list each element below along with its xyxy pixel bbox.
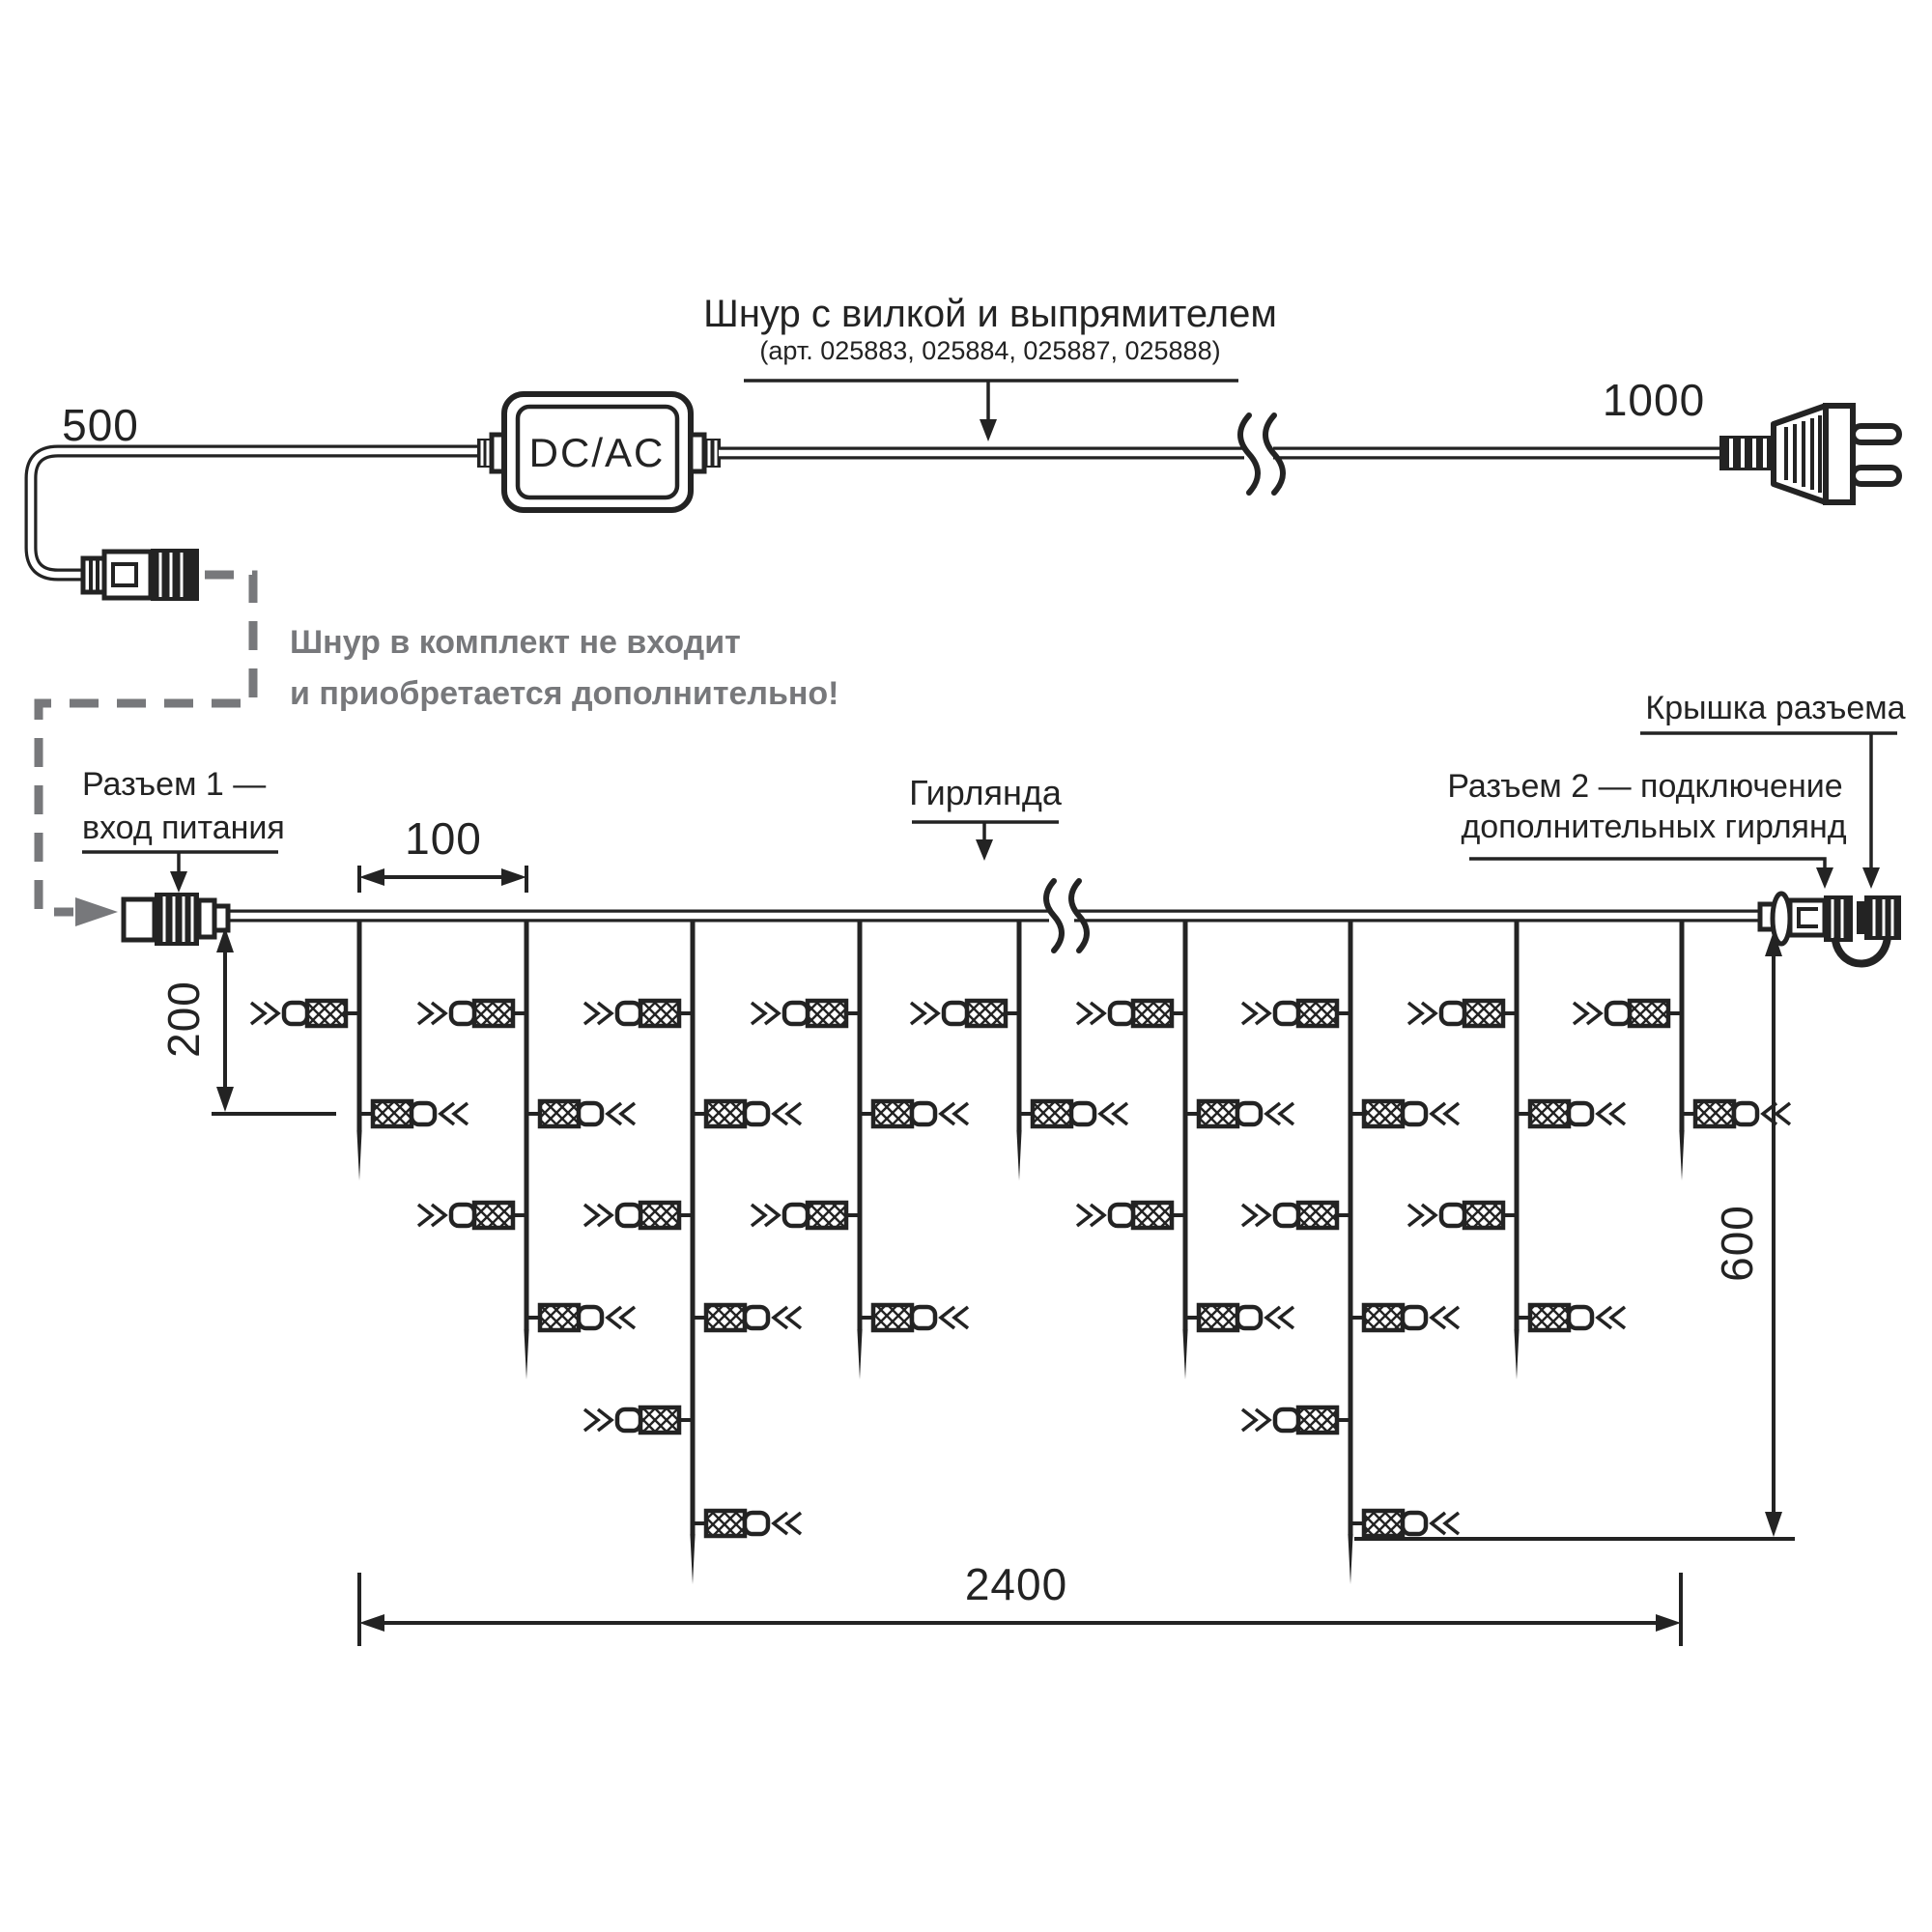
dim-100-label: 100 <box>405 813 482 864</box>
led-bulb <box>1185 1305 1293 1330</box>
cord-title: Шнур с вилкой и выпрямителем <box>703 293 1277 335</box>
light-rays-icon <box>584 1003 598 1024</box>
bulb-socket <box>640 1203 679 1228</box>
bulb-lens <box>451 1205 474 1226</box>
led-bulb <box>1242 1001 1350 1026</box>
bulb-socket <box>1530 1305 1569 1330</box>
bulb-lens <box>1441 1205 1464 1226</box>
bulb-socket <box>1199 1305 1237 1330</box>
drop-tip <box>356 1130 361 1180</box>
led-bulb <box>911 1001 1019 1026</box>
icicle-drop <box>1574 922 1790 1180</box>
bulb-socket <box>540 1305 579 1330</box>
bulb-lens <box>617 1409 640 1431</box>
wire-break-icon <box>1046 881 1087 951</box>
light-rays-icon <box>1445 1103 1459 1124</box>
note-line1: Шнур в комплект не входит <box>290 624 741 661</box>
bulb-lens <box>617 1205 640 1226</box>
bulb-lens <box>912 1103 935 1124</box>
drop-tip <box>1514 1329 1519 1379</box>
led-bulb <box>860 1101 968 1126</box>
light-rays-icon <box>1776 1103 1790 1124</box>
dashed-arrow-icon <box>75 897 118 926</box>
connector-cap <box>1857 895 1901 940</box>
connector2-pointer <box>1469 859 1833 889</box>
light-rays-icon <box>787 1513 801 1534</box>
bulb-socket <box>1298 1407 1337 1433</box>
bulb-socket <box>1298 1001 1337 1026</box>
led-bulb <box>1350 1511 1459 1536</box>
led-bulb <box>251 1001 359 1026</box>
icicle-drop <box>1077 922 1293 1379</box>
bulb-lens <box>1275 1003 1298 1024</box>
led-bulb <box>584 1407 693 1433</box>
power-plug <box>1719 406 1899 502</box>
drop-tip <box>524 1329 528 1379</box>
cable-1000-label: 1000 <box>1603 375 1705 425</box>
bulb-socket <box>706 1101 745 1126</box>
bulb-socket <box>808 1203 846 1228</box>
bulb-lens <box>617 1003 640 1024</box>
cap-label: Крышка разъема <box>1645 690 1905 726</box>
connector-2 <box>1760 894 1901 964</box>
cord-title-arrow-icon <box>980 381 997 441</box>
bulb-lens <box>912 1307 935 1328</box>
bulb-socket <box>307 1001 346 1026</box>
bulb-lens <box>1275 1409 1298 1431</box>
connector2-label-line1: Разъем 2 — подключение <box>1447 768 1842 805</box>
bulb-lens <box>579 1307 602 1328</box>
bulb-lens <box>1606 1003 1630 1024</box>
light-rays-icon <box>954 1103 968 1124</box>
bulb-socket <box>373 1101 412 1126</box>
light-rays-icon <box>787 1307 801 1328</box>
light-rays-icon <box>621 1307 635 1328</box>
drop-tip <box>690 1534 695 1584</box>
bulb-lens <box>1403 1513 1426 1534</box>
light-rays-icon <box>621 1103 635 1124</box>
light-rays-icon <box>418 1003 432 1024</box>
bulb-socket <box>1530 1101 1569 1126</box>
light-rays-icon <box>1242 1205 1256 1226</box>
led-bulb <box>1185 1101 1293 1126</box>
bulb-lens <box>784 1205 808 1226</box>
connector-1 <box>124 893 228 946</box>
bulb-socket <box>1298 1203 1337 1228</box>
bulb-lens <box>1071 1103 1094 1124</box>
drop-tip <box>1182 1329 1187 1379</box>
led-bulb <box>418 1001 526 1026</box>
bulb-lens <box>1110 1003 1133 1024</box>
led-bulb <box>693 1101 801 1126</box>
light-rays-icon <box>1445 1513 1459 1534</box>
light-rays-icon <box>1280 1307 1293 1328</box>
light-rays-icon <box>454 1103 468 1124</box>
bulb-socket <box>540 1101 579 1126</box>
led-bulb <box>1408 1001 1517 1026</box>
bulb-lens <box>944 1003 967 1024</box>
bulb-socket <box>873 1101 912 1126</box>
bulb-lens <box>784 1003 808 1024</box>
bulb-socket <box>1464 1203 1503 1228</box>
connector1-label-line2: вход питания <box>82 810 285 846</box>
bulb-socket <box>474 1203 513 1228</box>
dcac-adapter: DC/AC <box>477 394 721 510</box>
drops-layer <box>251 922 1790 1584</box>
bulb-lens <box>1275 1205 1298 1226</box>
connector1-label-line1: Разъем 1 — <box>82 766 266 803</box>
led-bulb <box>1077 1203 1185 1228</box>
light-rays-icon <box>1242 1003 1256 1024</box>
bulb-socket <box>640 1407 679 1433</box>
light-rays-icon <box>911 1003 924 1024</box>
cable-1000 <box>719 415 1721 493</box>
light-rays-icon <box>584 1205 598 1226</box>
connector2-label-line2: дополнительных гирлянд <box>1461 809 1846 845</box>
bulb-socket <box>640 1001 679 1026</box>
cable-500-label: 500 <box>62 400 139 450</box>
bulb-lens <box>284 1003 307 1024</box>
drop-tip <box>1016 1130 1021 1180</box>
bulb-socket <box>1033 1101 1071 1126</box>
light-rays-icon <box>1114 1103 1127 1124</box>
garland-wire <box>226 881 1762 951</box>
bulb-lens <box>1237 1307 1261 1328</box>
bulb-lens <box>412 1103 435 1124</box>
light-rays-icon <box>752 1205 765 1226</box>
led-bulb <box>418 1203 526 1228</box>
bulb-socket <box>1133 1203 1172 1228</box>
light-rays-icon <box>787 1103 801 1124</box>
led-bulb <box>1517 1101 1625 1126</box>
led-bulb <box>1350 1305 1459 1330</box>
bulb-lens <box>1237 1103 1261 1124</box>
bulb-lens <box>745 1513 768 1534</box>
led-bulb <box>359 1101 468 1126</box>
bulb-socket <box>1199 1101 1237 1126</box>
light-rays-icon <box>1445 1307 1459 1328</box>
led-bulb <box>584 1001 693 1026</box>
drop-tip <box>1679 1130 1684 1180</box>
led-bulb <box>693 1511 801 1536</box>
bulb-lens <box>1441 1003 1464 1024</box>
cord-subtitle: (арт. 025883, 025884, 025887, 025888) <box>759 336 1220 365</box>
led-bulb <box>1019 1101 1127 1126</box>
bulb-lens <box>1110 1205 1133 1226</box>
bulb-socket <box>873 1305 912 1330</box>
note-line2: и приобретается дополнительно! <box>290 675 839 712</box>
led-bulb <box>752 1001 860 1026</box>
led-bulb <box>1242 1203 1350 1228</box>
bulb-lens <box>1403 1103 1426 1124</box>
led-bulb <box>1574 1001 1682 1026</box>
cable-break-icon <box>1240 415 1283 493</box>
bulb-socket <box>1464 1001 1503 1026</box>
dcac-label: DC/AC <box>529 430 666 475</box>
garland-section: Разъем 1 — вход питания Гирлянда Разъем … <box>82 690 1906 1646</box>
light-rays-icon <box>1574 1003 1587 1024</box>
bulb-socket <box>1364 1101 1403 1126</box>
bulb-socket <box>808 1001 846 1026</box>
light-rays-icon <box>1611 1307 1625 1328</box>
bulb-lens <box>745 1307 768 1328</box>
led-bulb <box>1517 1305 1625 1330</box>
light-rays-icon <box>1280 1103 1293 1124</box>
cord-connector <box>83 549 199 601</box>
bulb-socket <box>1695 1101 1734 1126</box>
led-bulb <box>526 1305 635 1330</box>
drop-tip <box>1348 1534 1352 1584</box>
led-bulb <box>1350 1101 1459 1126</box>
led-bulb <box>584 1203 693 1228</box>
led-bulb <box>1077 1001 1185 1026</box>
light-rays-icon <box>1077 1205 1091 1226</box>
led-bulb <box>526 1101 635 1126</box>
icicle-drop <box>418 922 635 1379</box>
led-bulb <box>860 1305 968 1330</box>
garland-label: Гирлянда <box>909 773 1063 812</box>
bulb-lens <box>1569 1307 1592 1328</box>
icicle-drop <box>911 922 1127 1180</box>
bulb-socket <box>1133 1001 1172 1026</box>
icicle-drop <box>251 922 468 1180</box>
dim-600-label: 600 <box>1712 1205 1762 1282</box>
garland-arrow-icon <box>976 822 993 861</box>
light-rays-icon <box>1077 1003 1091 1024</box>
light-rays-icon <box>752 1003 765 1024</box>
connector1-arrow-icon <box>170 852 187 893</box>
dim-100: 100 <box>359 813 526 893</box>
bulb-lens <box>451 1003 474 1024</box>
bulb-socket <box>706 1511 745 1536</box>
light-rays-icon <box>1242 1409 1256 1431</box>
led-bulb <box>1408 1203 1517 1228</box>
light-rays-icon <box>1408 1003 1422 1024</box>
drop-tip <box>857 1329 862 1379</box>
dim-200-label: 200 <box>158 980 209 1058</box>
led-bulb <box>693 1305 801 1330</box>
dim-2400: 2400 <box>359 1559 1681 1646</box>
not-included-path <box>39 575 253 926</box>
light-rays-icon <box>584 1409 598 1431</box>
light-rays-icon <box>251 1003 265 1024</box>
bulb-socket <box>474 1001 513 1026</box>
bulb-lens <box>1403 1307 1426 1328</box>
diagram-page: Шнур с вилкой и выпрямителем (арт. 02588… <box>0 0 1932 1932</box>
light-rays-icon <box>1611 1103 1625 1124</box>
bulb-lens <box>1734 1103 1757 1124</box>
bulb-lens <box>745 1103 768 1124</box>
bulb-socket <box>1364 1511 1403 1536</box>
light-rays-icon <box>954 1307 968 1328</box>
garland-schematic: Шнур с вилкой и выпрямителем (арт. 02588… <box>0 0 1932 1932</box>
light-rays-icon <box>1408 1205 1422 1226</box>
light-rays-icon <box>418 1205 432 1226</box>
led-bulb <box>752 1203 860 1228</box>
bulb-lens <box>579 1103 602 1124</box>
bulb-socket <box>1630 1001 1668 1026</box>
dim-2400-label: 2400 <box>965 1559 1067 1609</box>
bulb-socket <box>706 1305 745 1330</box>
bulb-socket <box>1364 1305 1403 1330</box>
bulb-socket <box>967 1001 1006 1026</box>
led-bulb <box>1242 1407 1350 1433</box>
bulb-lens <box>1569 1103 1592 1124</box>
